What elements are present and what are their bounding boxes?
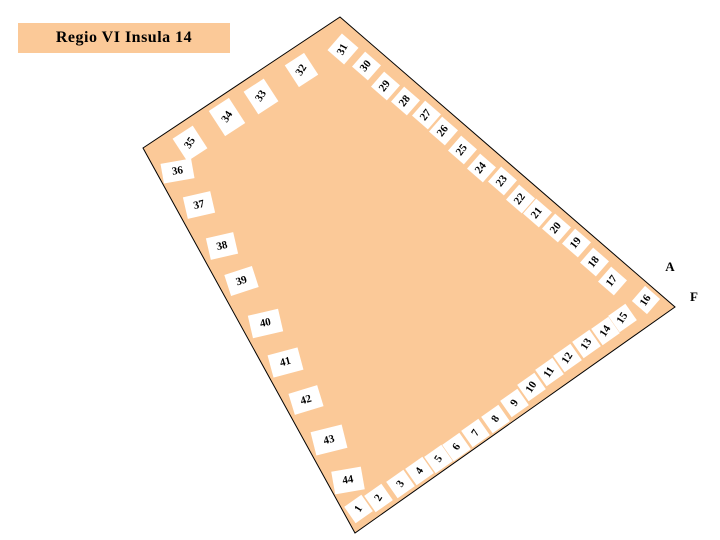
street-label-A[interactable]: A	[665, 259, 674, 275]
plot-number: 16	[638, 292, 653, 307]
plot-number: 33	[253, 88, 268, 103]
plot-number: 15	[614, 310, 629, 325]
plot-number: 21	[529, 205, 544, 220]
plot-number: 11	[542, 365, 557, 380]
plot-number: 2	[372, 493, 384, 504]
plot-number: 9	[508, 398, 520, 409]
plot-number: 42	[299, 393, 313, 407]
plot-number: 31	[336, 42, 351, 57]
plot-number: 37	[192, 198, 205, 211]
street-label-F[interactable]: F	[690, 289, 698, 305]
plot-number: 1	[352, 504, 364, 515]
plot-number: 24	[473, 160, 488, 175]
plot-number: 14	[597, 323, 612, 338]
plot-number: 7	[469, 428, 481, 439]
plot-number: 35	[182, 135, 197, 150]
plot-number: 17	[604, 273, 619, 288]
insula-map-canvas: Regio VI Insula 14 123456789101112131415…	[0, 0, 720, 540]
plot-number: 23	[494, 173, 509, 188]
plot-number: 6	[450, 442, 462, 453]
plot-number: 28	[397, 93, 412, 108]
plot-number: 8	[489, 414, 501, 425]
plot-number: 32	[293, 62, 308, 77]
plot-number: 43	[322, 433, 335, 446]
plot-44-marker[interactable]: 44	[331, 466, 365, 494]
plot-number: 3	[394, 479, 406, 490]
plot-number: 41	[278, 355, 291, 368]
plot-number: 38	[215, 239, 228, 252]
plot-number: 25	[454, 142, 469, 157]
plot-number: 44	[342, 474, 355, 487]
plot-number: 5	[432, 454, 444, 465]
plot-number: 30	[358, 58, 373, 73]
plot-number: 4	[413, 466, 425, 477]
map-title: Regio VI Insula 14	[18, 23, 230, 53]
plot-number: 34	[219, 109, 234, 124]
plot-number: 39	[234, 274, 248, 288]
plot-number: 29	[377, 78, 392, 93]
plot-number: 13	[578, 336, 593, 351]
plot-number: 36	[171, 165, 184, 178]
plot-number: 18	[586, 254, 601, 269]
plot-number: 26	[435, 123, 450, 138]
plot-number: 27	[418, 107, 433, 122]
plot-number: 20	[548, 220, 563, 235]
plot-number: 22	[512, 191, 527, 206]
plot-number: 19	[568, 235, 583, 250]
plot-number: 12	[559, 350, 574, 365]
plot-number: 40	[258, 316, 271, 329]
plot-number: 10	[523, 379, 538, 394]
